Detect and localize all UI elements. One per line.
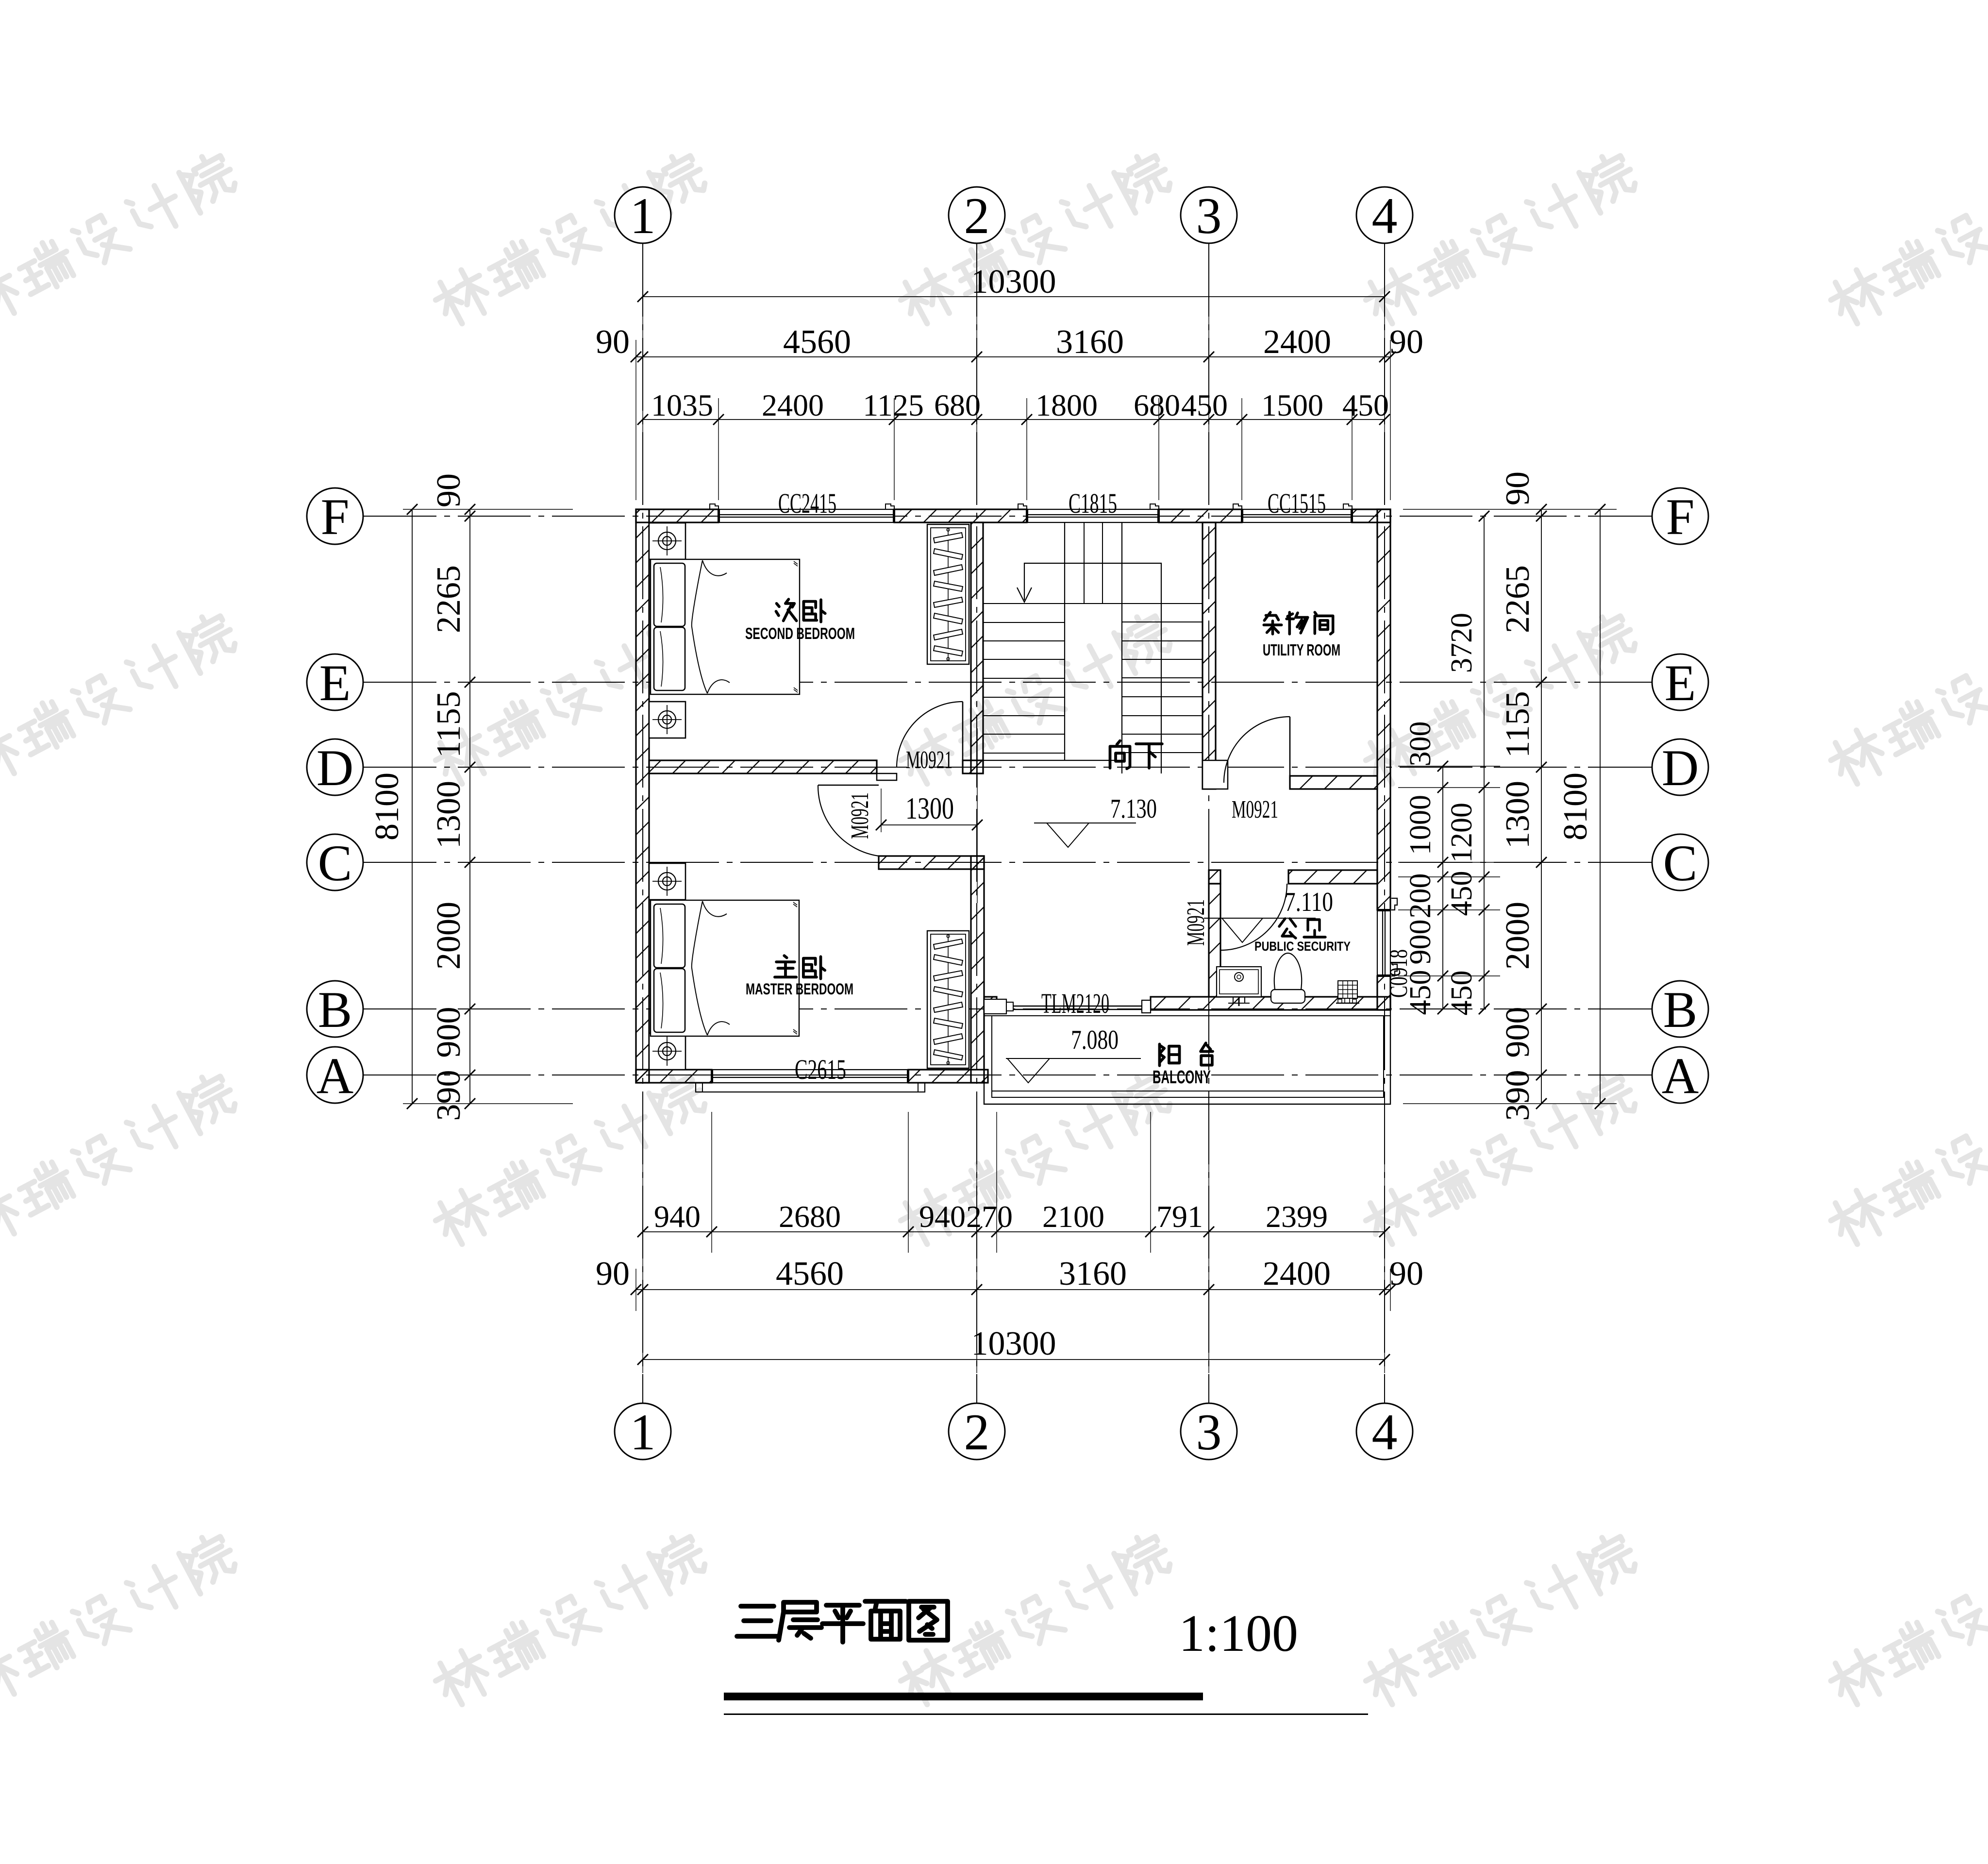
svg-text:1200: 1200 <box>1445 803 1478 863</box>
svg-text:4: 4 <box>1372 1404 1398 1461</box>
svg-text:2100: 2100 <box>1042 1199 1104 1234</box>
svg-text:1155: 1155 <box>1499 691 1537 757</box>
svg-text:1035: 1035 <box>651 388 713 422</box>
svg-text:D: D <box>317 739 354 796</box>
svg-text:4: 4 <box>1372 187 1398 244</box>
svg-text:2400: 2400 <box>762 388 824 422</box>
svg-text:F: F <box>1666 488 1695 545</box>
svg-text:B: B <box>1663 981 1698 1038</box>
svg-text:940: 940 <box>919 1199 966 1234</box>
svg-text:270: 270 <box>966 1199 1013 1234</box>
svg-text:4560: 4560 <box>783 323 851 361</box>
svg-text:90: 90 <box>430 473 468 507</box>
svg-text:450: 450 <box>1181 388 1228 422</box>
svg-text:SECOND BEDROOM: SECOND BEDROOM <box>745 624 855 642</box>
svg-text:C1815: C1815 <box>1069 487 1117 519</box>
svg-text:1500: 1500 <box>1261 388 1323 422</box>
svg-text:2265: 2265 <box>430 565 468 633</box>
svg-text:940: 940 <box>654 1199 701 1234</box>
svg-text:10300: 10300 <box>971 263 1056 301</box>
svg-text:90: 90 <box>596 1255 630 1293</box>
svg-text:2399: 2399 <box>1266 1199 1328 1234</box>
svg-text:680: 680 <box>934 388 981 422</box>
svg-text:TLM2120: TLM2120 <box>1041 988 1109 1019</box>
svg-text:C2615: C2615 <box>795 1054 846 1085</box>
svg-text:2000: 2000 <box>430 902 468 970</box>
svg-text:1000: 1000 <box>1404 795 1437 855</box>
svg-text:A: A <box>317 1047 354 1104</box>
svg-text:1: 1 <box>630 187 656 244</box>
svg-text:900: 900 <box>430 1007 468 1058</box>
svg-text:A: A <box>1662 1047 1699 1104</box>
svg-text:390: 390 <box>430 1070 468 1121</box>
svg-text:791: 791 <box>1156 1199 1203 1234</box>
svg-text:3: 3 <box>1196 1404 1222 1461</box>
svg-text:M0921: M0921 <box>846 792 874 839</box>
svg-text:2400: 2400 <box>1263 1255 1331 1293</box>
svg-text:8100: 8100 <box>368 772 406 840</box>
svg-text:300: 300 <box>1404 722 1437 767</box>
svg-text:3160: 3160 <box>1059 1255 1127 1293</box>
svg-text:90: 90 <box>1499 471 1537 505</box>
svg-text:390: 390 <box>1499 1070 1537 1121</box>
svg-text:1300: 1300 <box>905 791 954 825</box>
svg-text:450: 450 <box>1445 971 1478 1016</box>
svg-text:2: 2 <box>964 187 990 244</box>
svg-text:7.110: 7.110 <box>1285 887 1333 917</box>
svg-text:C0918: C0918 <box>1385 949 1413 998</box>
svg-text:D: D <box>1662 739 1699 796</box>
svg-text:1300: 1300 <box>430 781 468 849</box>
svg-text:1300: 1300 <box>1499 781 1537 849</box>
svg-text:1:100: 1:100 <box>1179 1605 1298 1662</box>
svg-text:M0921: M0921 <box>1232 796 1278 823</box>
svg-text:7.130: 7.130 <box>1110 794 1157 824</box>
svg-text:3160: 3160 <box>1056 323 1124 361</box>
svg-text:C: C <box>1663 835 1698 891</box>
svg-text:MASTER BERDOOM: MASTER BERDOOM <box>746 980 853 998</box>
svg-text:CC2415: CC2415 <box>778 487 836 519</box>
svg-text:7.080: 7.080 <box>1071 1025 1119 1055</box>
svg-text:M0921: M0921 <box>1182 899 1210 946</box>
svg-text:PUBLIC SECURITY: PUBLIC SECURITY <box>1254 939 1351 954</box>
svg-text:2265: 2265 <box>1499 565 1537 633</box>
svg-text:2000: 2000 <box>1499 902 1537 970</box>
svg-text:2: 2 <box>964 1404 990 1461</box>
svg-text:90: 90 <box>1389 323 1423 361</box>
svg-text:CC1515: CC1515 <box>1268 487 1326 519</box>
svg-text:1: 1 <box>630 1404 656 1461</box>
svg-text:90: 90 <box>596 323 630 361</box>
svg-text:M0921: M0921 <box>906 746 952 774</box>
svg-text:E: E <box>319 655 351 711</box>
svg-text:8100: 8100 <box>1557 772 1594 840</box>
svg-text:900: 900 <box>1499 1007 1537 1058</box>
svg-text:1155: 1155 <box>430 691 468 757</box>
svg-text:1125: 1125 <box>863 388 924 422</box>
svg-text:UTILITY ROOM: UTILITY ROOM <box>1263 641 1340 659</box>
svg-text:3720: 3720 <box>1445 613 1478 673</box>
svg-text:1800: 1800 <box>1036 388 1098 422</box>
svg-text:E: E <box>1665 655 1696 711</box>
svg-text:C: C <box>318 835 352 891</box>
svg-text:B: B <box>318 981 352 1038</box>
svg-text:3: 3 <box>1196 187 1222 244</box>
svg-text:F: F <box>321 488 350 545</box>
svg-text:2400: 2400 <box>1263 323 1331 361</box>
svg-text:90: 90 <box>1389 1255 1423 1293</box>
svg-text:450: 450 <box>1445 871 1478 916</box>
svg-text:680: 680 <box>1134 388 1180 422</box>
svg-text:2680: 2680 <box>779 1199 841 1234</box>
svg-text:BALCONY: BALCONY <box>1153 1067 1211 1088</box>
svg-text:4560: 4560 <box>776 1255 844 1293</box>
svg-text:10300: 10300 <box>971 1325 1056 1362</box>
svg-text:450: 450 <box>1342 388 1389 422</box>
svg-text:200: 200 <box>1404 873 1437 919</box>
